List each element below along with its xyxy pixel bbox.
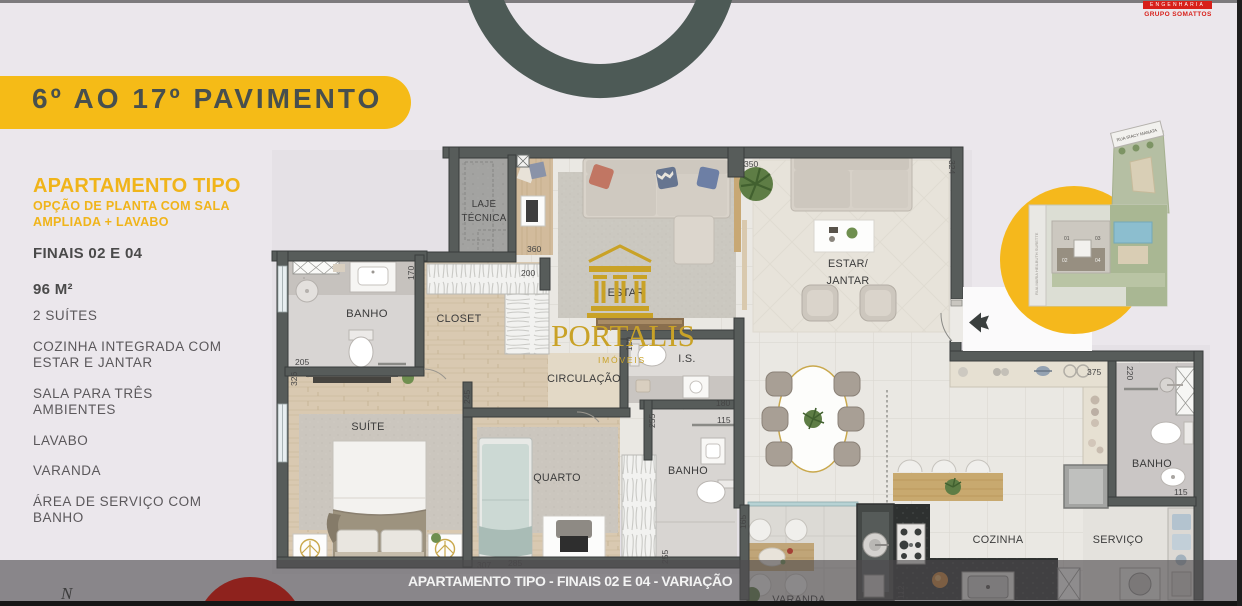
svg-text:170: 170 <box>406 266 416 280</box>
svg-text:04: 04 <box>1095 258 1101 264</box>
svg-text:BANHO: BANHO <box>346 308 388 320</box>
svg-text:IMÓVEIS: IMÓVEIS <box>598 355 646 365</box>
svg-text:03: 03 <box>1095 236 1101 242</box>
svg-text:375: 375 <box>1087 367 1101 377</box>
svg-text:COZINHA: COZINHA <box>973 534 1024 546</box>
svg-text:200: 200 <box>521 268 535 278</box>
svg-text:115: 115 <box>1174 487 1188 497</box>
svg-text:350: 350 <box>744 159 758 169</box>
svg-text:326: 326 <box>289 372 299 386</box>
svg-text:115: 115 <box>717 415 731 425</box>
svg-text:LAJE: LAJE <box>472 199 497 210</box>
svg-text:QUARTO: QUARTO <box>533 472 581 484</box>
svg-text:ESTAR: ESTAR <box>608 287 645 299</box>
svg-text:220: 220 <box>1125 366 1135 380</box>
svg-text:02: 02 <box>1062 258 1068 264</box>
svg-text:180: 180 <box>716 398 730 408</box>
svg-text:SUÍTE: SUÍTE <box>351 420 384 433</box>
svg-text:ESTAR/: ESTAR/ <box>828 258 868 270</box>
svg-text:BANHO: BANHO <box>668 465 708 477</box>
svg-text:205: 205 <box>295 357 309 367</box>
svg-text:165: 165 <box>738 515 748 529</box>
svg-text:TÉCNICA: TÉCNICA <box>461 213 506 224</box>
svg-text:BANHO: BANHO <box>1132 458 1172 470</box>
svg-text:360: 360 <box>527 244 541 254</box>
svg-text:PORTALIS: PORTALIS <box>551 318 695 353</box>
svg-text:324: 324 <box>947 160 957 174</box>
svg-text:JANTAR: JANTAR <box>827 275 870 287</box>
svg-text:RUA MARIA HEILBUTH SURETTE: RUA MARIA HEILBUTH SURETTE <box>1034 232 1039 295</box>
svg-text:I.S.: I.S. <box>678 353 695 365</box>
svg-text:255: 255 <box>647 414 657 428</box>
svg-text:SERVIÇO: SERVIÇO <box>1093 534 1144 546</box>
svg-text:CIRCULAÇÃO: CIRCULAÇÃO <box>547 372 621 385</box>
svg-text:CLOSET: CLOSET <box>437 313 482 325</box>
svg-text:245: 245 <box>462 390 472 404</box>
svg-text:01: 01 <box>1064 236 1070 242</box>
